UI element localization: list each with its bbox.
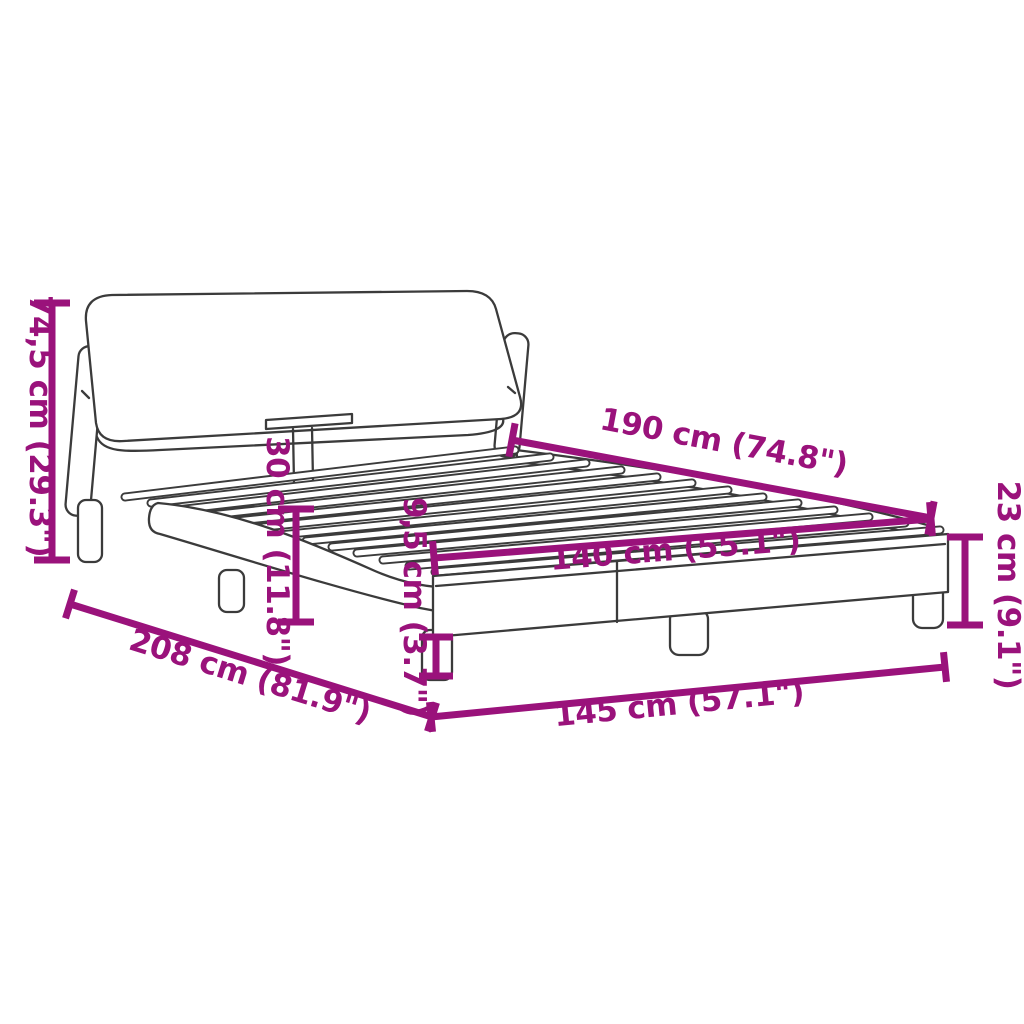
headboard-leg <box>78 500 102 562</box>
dim-label-leg-height: 9,5 cm (3.7") <box>396 497 432 717</box>
dim-total-width: 145 cm (57.1") <box>430 652 947 734</box>
dim-foot-frame-height: 23 cm (9.1") <box>947 481 1024 690</box>
dim-headboard-height: 74,5 cm (29.3") <box>22 295 70 560</box>
dim-total-length: 208 cm (81.9") <box>66 590 437 732</box>
bed-frame-diagram: 74,5 cm (29.3") 190 cm (74.8") 30 cm (11… <box>0 0 1024 1024</box>
dim-label-foot-frame-height: 23 cm (9.1") <box>990 481 1024 690</box>
headboard-cushion <box>86 291 521 441</box>
dim-label-total-width: 145 cm (57.1") <box>552 674 805 734</box>
dimension-diagram-canvas: 74,5 cm (29.3") 190 cm (74.8") 30 cm (11… <box>0 0 1024 1024</box>
dim-label-total-length: 208 cm (81.9") <box>125 622 375 731</box>
bed-drawing <box>65 291 948 680</box>
dim-label-headboard-height: 74,5 cm (29.3") <box>22 295 58 557</box>
left-middle-leg <box>219 570 244 612</box>
dim-label-side-rail-height: 30 cm (11.8") <box>259 436 295 666</box>
